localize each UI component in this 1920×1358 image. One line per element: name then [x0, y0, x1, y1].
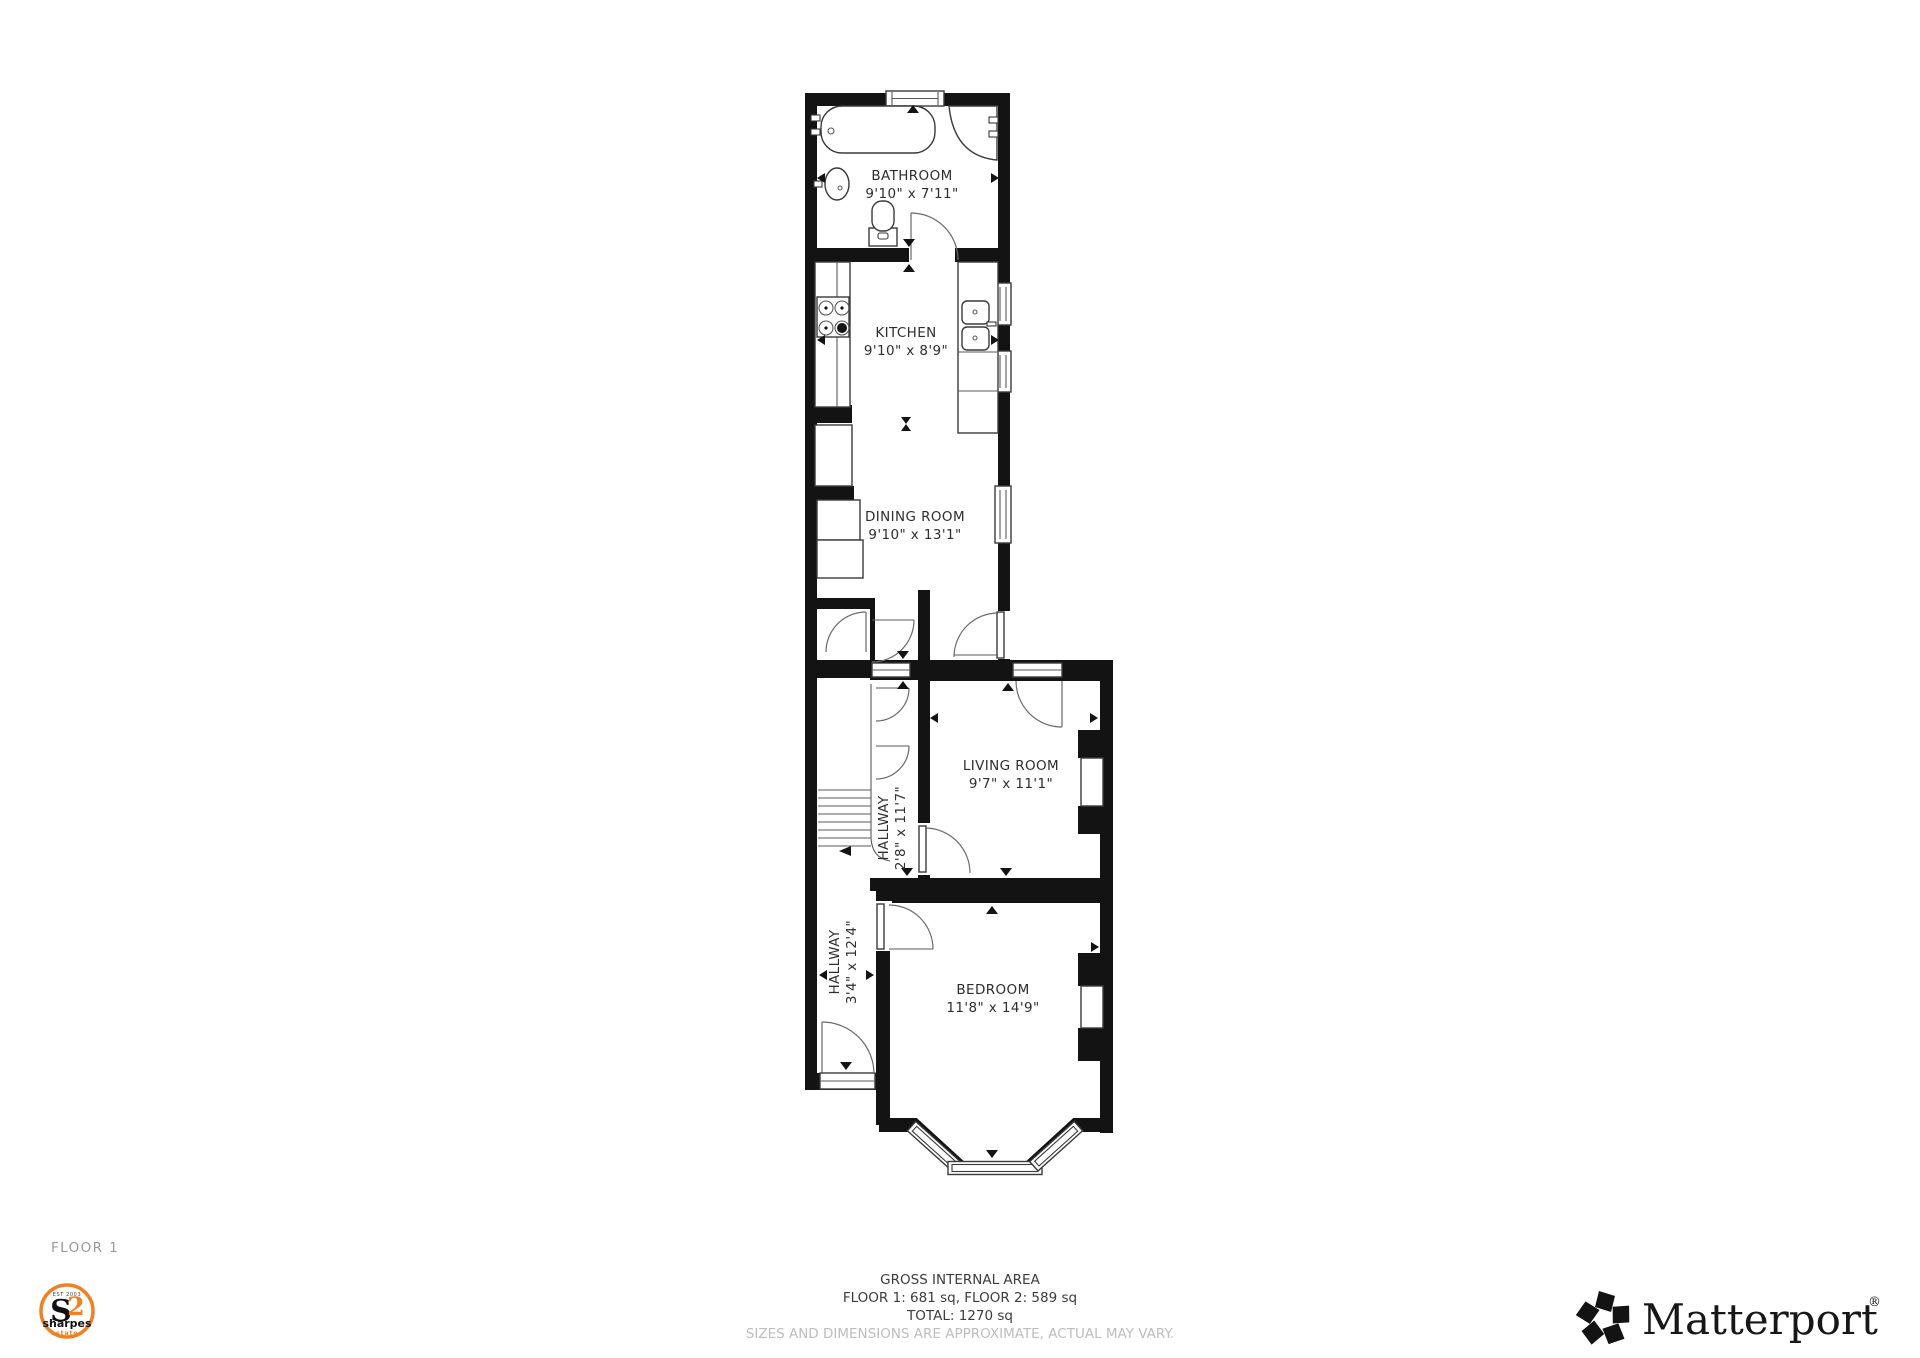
chimney-breast	[1078, 1028, 1103, 1061]
floorplan-canvas: BATHROOM 9'10" x 7'11" KITCHEN 9'10" x 8…	[0, 0, 1920, 1358]
marker-up	[986, 906, 998, 914]
bathroom-label: BATHROOM	[871, 168, 952, 184]
marker-left	[819, 970, 827, 980]
living-door-sill	[1013, 663, 1062, 677]
wall-segment	[805, 598, 875, 609]
marker-left	[930, 713, 938, 723]
bathtub	[811, 106, 935, 153]
wall-segment	[870, 878, 918, 891]
matterport-registered-mark: ®	[1868, 1295, 1881, 1310]
hallway-lower-label: HALLWAY	[827, 929, 843, 994]
matterport-logo: Matterport ®	[1575, 1291, 1881, 1348]
bathroom-dims: 9'10" x 7'11"	[865, 186, 958, 202]
hall-opening-sill	[872, 663, 910, 677]
total-area: TOTAL: 1270 sq	[906, 1308, 1013, 1324]
marker-up	[901, 424, 911, 431]
agency-logo-sub: estates	[51, 1330, 83, 1337]
marker-right	[991, 173, 999, 183]
kitchen-label: KITCHEN	[875, 325, 936, 341]
marker-down	[901, 417, 911, 424]
marker-down	[840, 1062, 852, 1070]
wall-segment	[870, 609, 875, 660]
marker-down	[1000, 868, 1012, 876]
bay-window-center	[948, 1162, 1042, 1175]
living-hall-door	[919, 826, 970, 873]
bathroom-sink	[814, 168, 849, 200]
understairs-door	[876, 688, 909, 721]
floor-breakdown: FLOOR 1: 681 sq, FLOOR 2: 589 sq	[843, 1290, 1077, 1306]
disclaimer: SIZES AND DIMENSIONS ARE APPROXIMATE, AC…	[746, 1326, 1174, 1342]
floorplan-page: BATHROOM 9'10" x 7'11" KITCHEN 9'10" x 8…	[0, 0, 1920, 1358]
understairs-door	[876, 746, 909, 779]
toilet	[869, 201, 897, 246]
chimney-breast	[1078, 730, 1103, 758]
dining-back-door	[954, 612, 1004, 658]
wall-segment	[805, 248, 909, 262]
wall-segment	[955, 248, 1010, 262]
dining-cabinet	[817, 500, 863, 578]
front-door-sill	[820, 1073, 875, 1089]
dining-recess-cabinet	[815, 425, 852, 486]
wall-segment	[805, 660, 875, 678]
floor-indicator: FLOOR 1	[51, 1240, 119, 1256]
footer: FLOOR 1 GROSS INTERNAL AREA FLOOR 1: 681…	[51, 1240, 1174, 1342]
fixtures	[811, 106, 998, 861]
agency-logo: EST 2003 S 2 sharpes estates	[41, 1285, 93, 1337]
dining-window	[995, 486, 1011, 543]
stove	[817, 297, 849, 337]
dining-room-dims: 9'10" x 13'1"	[868, 527, 961, 543]
bedroom-dims: 11'8" x 14'9"	[946, 1000, 1039, 1016]
chimney-recess	[1081, 986, 1103, 1028]
living-room-door	[1016, 681, 1062, 727]
bathroom-door	[911, 213, 958, 260]
kitchen-dims: 9'10" x 8'9"	[864, 343, 948, 359]
bathroom-window	[886, 91, 944, 106]
chimney-breast	[1078, 806, 1103, 834]
wall-segment	[805, 405, 852, 423]
living-room-dims: 9'7" x 11'1"	[969, 776, 1053, 792]
marker-up	[1002, 683, 1014, 691]
shower	[949, 106, 998, 160]
hallway-upper-label: HALLWAY	[876, 795, 892, 860]
matterport-wordmark: Matterport	[1642, 1295, 1878, 1344]
hallway-lower-dims: 3'4" x 12'4"	[844, 920, 860, 1004]
living-room-label: LIVING ROOM	[963, 758, 1059, 774]
marker-up	[897, 681, 909, 689]
hallway-upper-dims: 2'8" x 11'7"	[893, 786, 909, 870]
dining-room-label: DINING ROOM	[865, 509, 965, 525]
hall-door	[872, 620, 914, 662]
gross-internal-area: GROSS INTERNAL AREA	[880, 1272, 1040, 1288]
matterport-pinwheel-icon	[1575, 1291, 1634, 1348]
agency-logo-name: sharpes	[42, 1317, 92, 1330]
marker-right	[866, 970, 874, 980]
marker-down	[897, 651, 909, 659]
bay-window-right	[1030, 1121, 1083, 1170]
marker-down	[903, 239, 915, 247]
chimney-breast	[1078, 953, 1103, 986]
bedroom-label: BEDROOM	[956, 982, 1029, 998]
marker-right	[1090, 713, 1098, 723]
closet-door	[826, 612, 866, 652]
chimney-recess	[1081, 758, 1103, 806]
wall-segment	[805, 93, 817, 1090]
marker-right	[1091, 942, 1099, 952]
wall-segment	[876, 890, 1113, 903]
marker-down	[986, 1150, 998, 1158]
marker-up	[903, 264, 915, 272]
